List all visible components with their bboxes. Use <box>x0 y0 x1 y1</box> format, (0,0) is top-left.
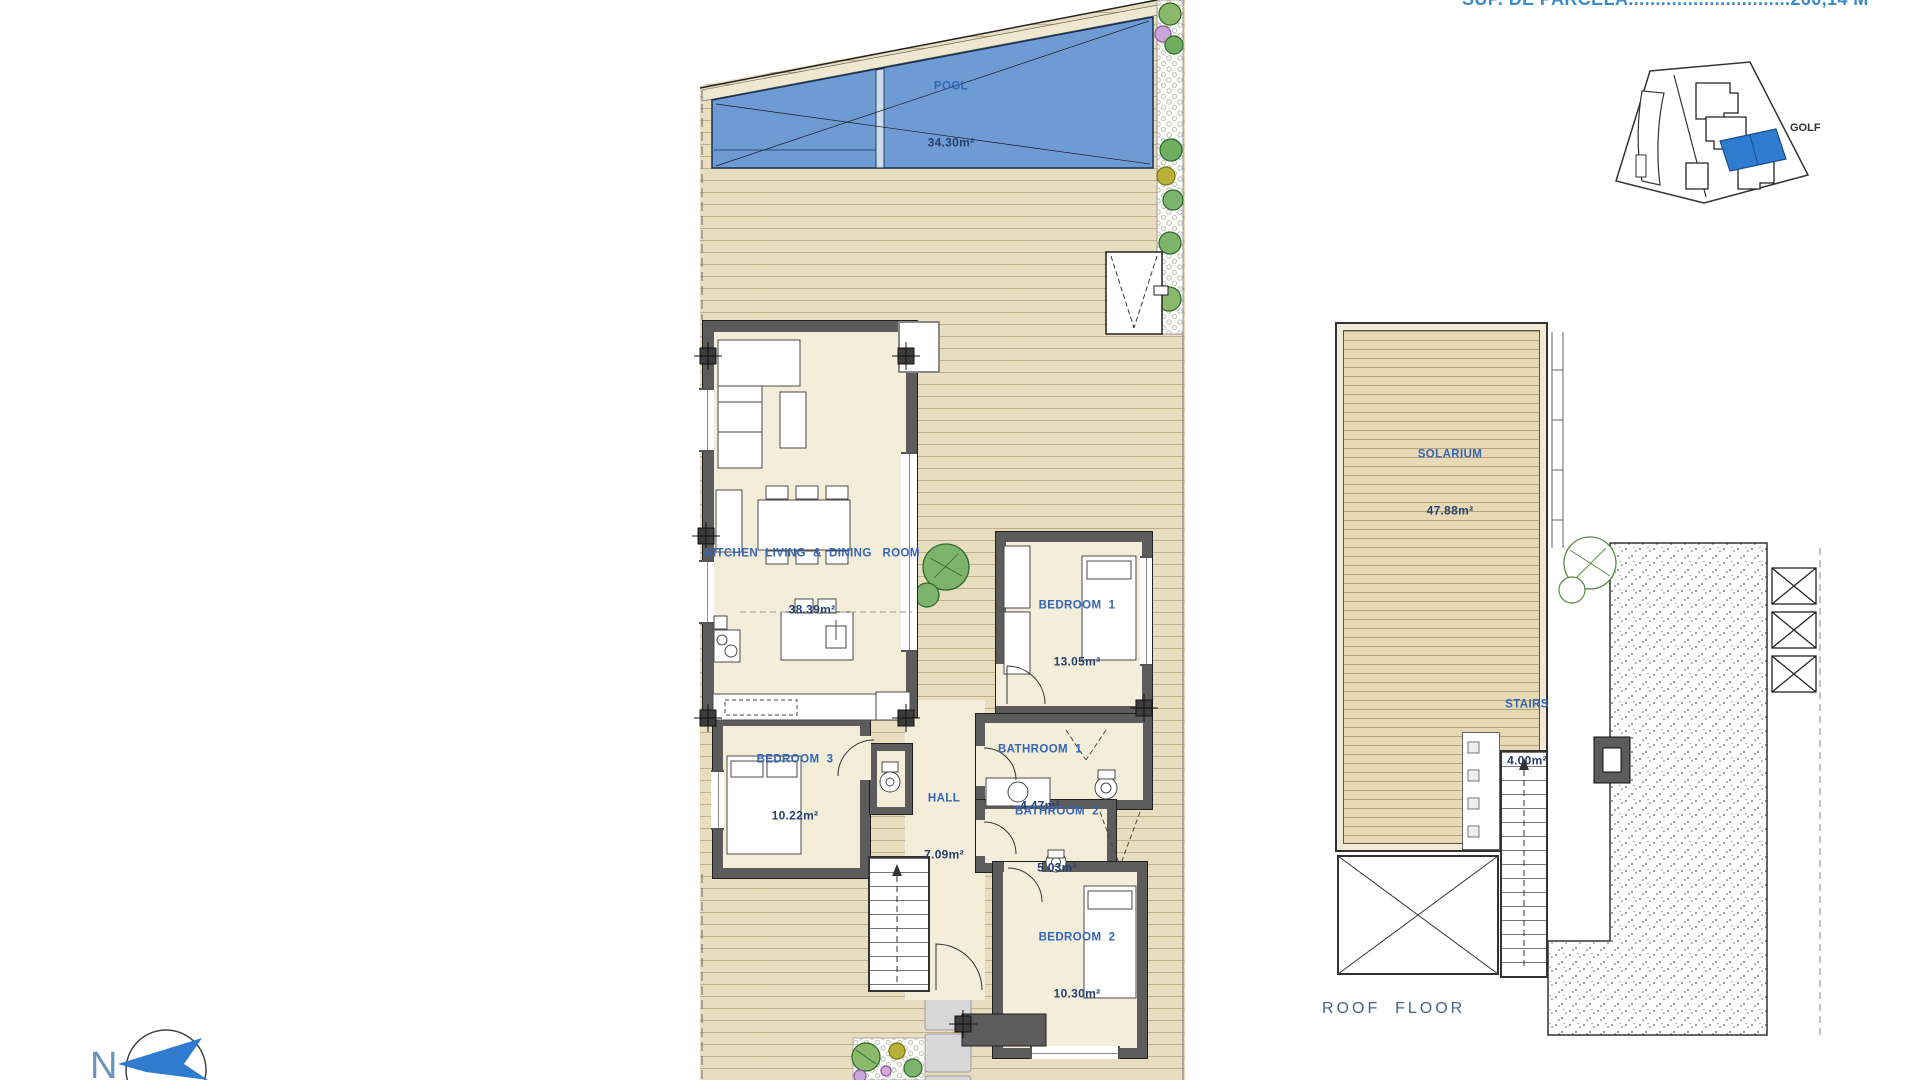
ac-units <box>1772 568 1816 692</box>
room-label-bedroom2: BEDROOM 2 10.30m² <box>1039 888 1116 1043</box>
door-opening <box>976 820 986 856</box>
golf-green-outline <box>1638 91 1664 185</box>
room-label-bedroom3: BEDROOM 3 10.22m² <box>757 710 834 865</box>
room-label-solarium: SOLARIUM 47.88m² <box>1418 405 1483 560</box>
room-label-kitchen-living: KITCHEN LIVING & DINING ROOM 38.39m² <box>704 504 920 659</box>
roof-void-cross <box>1338 856 1498 974</box>
room-label-pool: POOL 34.30m² <box>928 37 975 192</box>
door-opening <box>860 736 871 780</box>
chimney-icon <box>1594 737 1630 783</box>
room-label-hall: HALL 7.09m² <box>924 749 964 904</box>
room-label-bedroom1: BEDROOM 1 13.05m² <box>1039 556 1116 711</box>
roof-gravel <box>1548 543 1767 1035</box>
parcel-area-text: SUP. DE PARCELA.........................… <box>1462 0 1875 10</box>
floorplan-canvas: GOLF N SUP. DE PARCELA..................… <box>0 0 1920 1080</box>
porch-notch <box>898 321 940 373</box>
door-opening <box>976 746 986 786</box>
north-label: N <box>90 1045 117 1080</box>
party-wall <box>1552 332 1563 548</box>
roof-plant-icon <box>1559 537 1616 603</box>
room-wc-closet <box>870 744 912 814</box>
roof-floor-title: ROOF FLOOR <box>1322 1000 1465 1018</box>
golf-label: GOLF <box>1790 122 1821 134</box>
window <box>1140 556 1152 666</box>
window <box>711 770 724 830</box>
window <box>699 388 714 452</box>
site-location-map: GOLF <box>1600 55 1850 205</box>
room-label-stairs: STAIRS 4.00m² <box>1505 655 1549 810</box>
window <box>1030 1046 1120 1059</box>
roof-planter <box>1462 732 1500 850</box>
north-arrow-icon: N <box>88 1014 238 1080</box>
site-buildings <box>1686 83 1774 189</box>
entry-stairs <box>868 856 930 992</box>
highlighted-unit <box>1720 129 1786 171</box>
